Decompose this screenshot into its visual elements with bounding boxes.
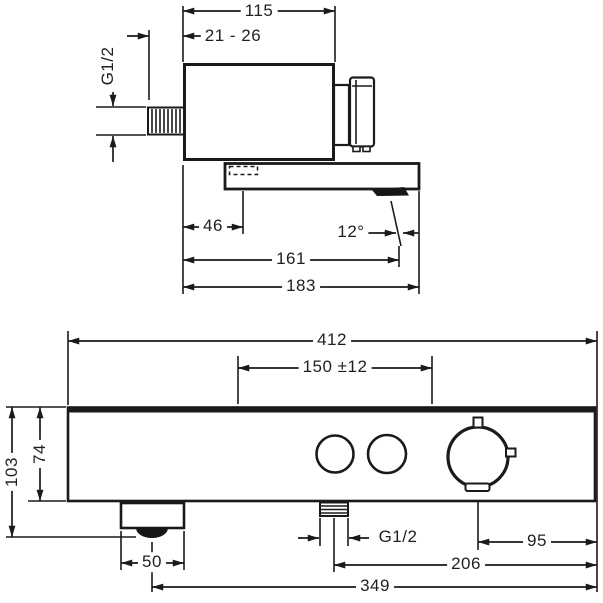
dim-label-body-width: 115 <box>241 1 278 21</box>
dial-right-tab <box>506 449 516 457</box>
bottom-thread-connector <box>320 503 348 517</box>
dim-label-wall-clearance: 21 - 26 <box>201 26 265 46</box>
angle-reference-line <box>391 201 401 246</box>
handle-neck <box>334 85 349 145</box>
mixer-body-side <box>185 65 334 160</box>
dim-label-outlet-offset: 46 <box>199 216 227 236</box>
dim-label-bottom-thread: G1/2 <box>375 527 422 547</box>
dim-label-total-height: 103 <box>2 453 22 491</box>
dim-label-inlet-thread: G1/2 <box>98 43 118 90</box>
spout-front <box>121 503 184 538</box>
select-button-right <box>368 435 406 473</box>
dim-label-dial-to-edge: 95 <box>523 531 551 551</box>
dim-label-spout-reach: 161 <box>272 249 310 269</box>
spout-outlet-dome <box>136 528 168 538</box>
dial-bottom-tab <box>466 484 490 492</box>
dim-label-spout-width: 50 <box>138 552 166 572</box>
inlet-thread-connector <box>148 108 185 135</box>
side-view-drawing <box>96 6 419 294</box>
dim-label-spout-angle: 12° <box>333 222 368 242</box>
dial-top-tab <box>474 418 483 428</box>
dim-label-total-width: 412 <box>313 330 351 350</box>
technical-drawing: 115 21 - 26 G1/2 46 12° 161 183 412 150 … <box>0 0 603 603</box>
dim-label-total-reach: 183 <box>282 276 320 296</box>
dim-label-connection-centers: 150 ±12 <box>299 357 372 377</box>
dim-label-spout-to-edge: 349 <box>356 576 394 596</box>
dim-label-thread-to-edge: 206 <box>447 554 485 574</box>
handle-side <box>350 78 374 152</box>
spout-side <box>225 164 419 190</box>
select-button-left <box>317 436 354 473</box>
drawing-linework <box>0 0 603 603</box>
dim-label-body-height: 74 <box>30 440 50 468</box>
